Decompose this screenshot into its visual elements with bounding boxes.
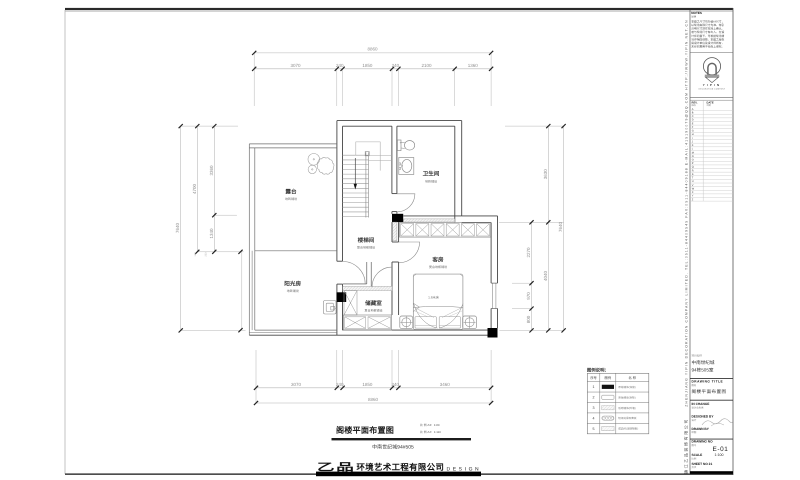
svg-text:复合地板铺设: 复合地板铺设 xyxy=(364,308,382,312)
svg-text:C: C xyxy=(692,115,694,118)
svg-text:绘图: 绘图 xyxy=(692,430,697,434)
svg-text:M: M xyxy=(692,151,694,154)
svg-text:240: 240 xyxy=(336,63,344,68)
svg-text:1: 1 xyxy=(593,385,595,389)
svg-text:U: U xyxy=(692,180,694,183)
svg-text:1340: 1340 xyxy=(209,228,214,239)
svg-text:中南世纪城94#505: 中南世纪城94#505 xyxy=(372,443,414,450)
svg-text:160: 160 xyxy=(194,252,197,257)
svg-text:地砖铺设: 地砖铺设 xyxy=(287,289,299,293)
svg-text:阁楼平面布置图: 阁楼平面布置图 xyxy=(336,425,394,435)
svg-text:比 例 A4：1:110: 比 例 A4：1:110 xyxy=(420,430,441,434)
svg-text:地砖铺设: 地砖铺设 xyxy=(425,179,437,183)
svg-text:3460: 3460 xyxy=(440,382,451,387)
svg-text:1360: 1360 xyxy=(468,63,479,68)
svg-text:图例: 图例 xyxy=(605,376,612,380)
svg-text:220: 220 xyxy=(204,252,207,257)
svg-text:REV.: REV. xyxy=(692,101,698,104)
svg-text:DESIGNED BY: DESIGNED BY xyxy=(692,415,715,419)
svg-text:3630: 3630 xyxy=(543,169,548,180)
svg-text:复合地板铺设: 复合地板铺设 xyxy=(429,265,447,269)
svg-text:况作相应调整。本图之版权: 况作相应调整。本图之版权 xyxy=(691,37,724,41)
svg-text:R: R xyxy=(692,169,694,172)
svg-text:复合地板铺设: 复合地板铺设 xyxy=(357,245,375,249)
svg-text:IN CHANGE: IN CHANGE xyxy=(692,402,710,406)
svg-text:4040: 4040 xyxy=(543,270,548,281)
svg-text:后砌墙体(砖墙): 后砌墙体(砖墙) xyxy=(618,406,635,410)
svg-text:4700: 4700 xyxy=(192,183,197,194)
svg-text:镇江乙品装饰有限公司: 镇江乙品装饰有限公司 xyxy=(683,418,688,474)
svg-text:970: 970 xyxy=(526,292,531,300)
svg-text:ZHENJIANG YIPIN DECORATION COM: ZHENJIANG YIPIN DECORATION COMPANY LIMIT… xyxy=(684,19,688,406)
svg-text:1850: 1850 xyxy=(362,63,373,68)
svg-text:DRAWING TITLE: DRAWING TITLE xyxy=(692,380,724,384)
svg-text:名 称: 名 称 xyxy=(629,376,637,380)
svg-text:94栋505室: 94栋505室 xyxy=(692,367,714,372)
svg-text:计师同意下，可根据现场情: 计师同意下，可根据现场情 xyxy=(691,34,724,38)
svg-text:240: 240 xyxy=(336,382,344,387)
svg-text:比 例 A3：1:80: 比 例 A3：1:80 xyxy=(420,423,440,427)
svg-text:未经同意用于他处上侵权。: 未经同意用于他处上侵权。 xyxy=(691,45,724,49)
svg-text:序号: 序号 xyxy=(590,376,597,380)
svg-text:中南世纪城: 中南世纪城 xyxy=(692,360,715,365)
svg-text:图名: 图名 xyxy=(692,383,697,387)
svg-text:1850: 1850 xyxy=(362,382,373,387)
svg-text:原始墙体(拆除): 原始墙体(拆除) xyxy=(618,395,635,399)
svg-text:楼梯间: 楼梯间 xyxy=(358,237,375,244)
svg-text:DATE: DATE xyxy=(707,101,714,104)
svg-text:若与现场尺寸有出入，在设: 若与现场尺寸有出入，在设 xyxy=(691,30,724,34)
svg-text:DECORATION COMPANY: DECORATION COMPANY xyxy=(699,87,726,90)
svg-text:DRAWN BY: DRAWN BY xyxy=(692,427,710,431)
svg-text:露台: 露台 xyxy=(285,189,297,196)
svg-text:H: H xyxy=(692,133,694,136)
svg-text:5: 5 xyxy=(593,427,595,431)
svg-text:属设计单位及设计师所有，: 属设计单位及设计师所有， xyxy=(691,41,724,45)
svg-text:阳光房: 阳光房 xyxy=(284,280,301,287)
svg-text:比例: 比例 xyxy=(692,457,697,460)
svg-text:240: 240 xyxy=(392,63,400,68)
svg-text:4: 4 xyxy=(593,416,595,420)
svg-text:DESIGN: DESIGN xyxy=(447,466,482,472)
svg-text:图号: 图号 xyxy=(692,444,697,447)
svg-text:客房: 客房 xyxy=(431,256,444,263)
svg-text:E-01: E-01 xyxy=(713,446,729,453)
svg-text:轻钢龙骨石膏板: 轻钢龙骨石膏板 xyxy=(618,416,637,420)
svg-text:储藏室: 储藏室 xyxy=(364,300,382,307)
svg-text:卫生间: 卫生间 xyxy=(423,171,440,178)
svg-text:说明: 说明 xyxy=(691,16,696,19)
svg-text:2100: 2100 xyxy=(421,63,432,68)
svg-text:7640: 7640 xyxy=(175,222,180,233)
svg-text:240: 240 xyxy=(392,382,400,387)
svg-text:地砖铺设: 地砖铺设 xyxy=(285,197,297,201)
svg-text:成品砖(玻璃隔断): 成品砖(玻璃隔断) xyxy=(618,427,638,431)
svg-text:本图之尺寸均为设计尺寸，: 本图之尺寸均为设计尺寸， xyxy=(691,19,724,23)
svg-text:Q: Q xyxy=(692,166,694,169)
svg-text:2: 2 xyxy=(593,396,595,400)
svg-text:以现场实际尺寸为准。特引: 以现场实际尺寸为准。特引 xyxy=(691,23,724,27)
svg-text:阁楼平面布置图: 阁楼平面布置图 xyxy=(692,389,727,394)
svg-text:8860: 8860 xyxy=(368,397,379,402)
svg-text:设计: 设计 xyxy=(692,419,697,422)
svg-text:3070: 3070 xyxy=(291,382,302,387)
svg-text:1:100: 1:100 xyxy=(715,453,724,457)
svg-text:800: 800 xyxy=(526,315,531,323)
svg-text:8860: 8860 xyxy=(367,47,378,52)
svg-text:YIPIN: YIPIN xyxy=(703,83,722,87)
svg-text:环境艺术工程有限公司: 环境艺术工程有限公司 xyxy=(357,462,445,472)
svg-text:项目名称: 项目名称 xyxy=(692,354,703,358)
svg-text:3360: 3360 xyxy=(209,165,214,176)
svg-text:DRAWING NO: DRAWING NO xyxy=(692,440,714,444)
svg-text:1.8米床: 1.8米床 xyxy=(428,295,440,299)
svg-text:页次: 页次 xyxy=(692,465,697,469)
svg-text:原始墙体(保留): 原始墙体(保留) xyxy=(618,385,635,389)
svg-text:3: 3 xyxy=(593,406,595,410)
svg-text:2270: 2270 xyxy=(526,247,531,258)
svg-text:D: D xyxy=(692,119,694,122)
svg-text:G: G xyxy=(692,130,694,133)
svg-text:3070: 3070 xyxy=(290,63,301,68)
svg-text:7640: 7640 xyxy=(558,221,563,232)
svg-text:注明尺寸须在现场上确认。: 注明尺寸须在现场上确认。 xyxy=(691,27,724,31)
svg-text:图例说明：: 图例说明： xyxy=(587,368,609,373)
svg-text:设计总负责: 设计总负责 xyxy=(692,406,705,410)
svg-text:N: N xyxy=(692,155,694,158)
svg-text:NOTES: NOTES xyxy=(691,11,702,15)
svg-text:O: O xyxy=(692,159,694,162)
